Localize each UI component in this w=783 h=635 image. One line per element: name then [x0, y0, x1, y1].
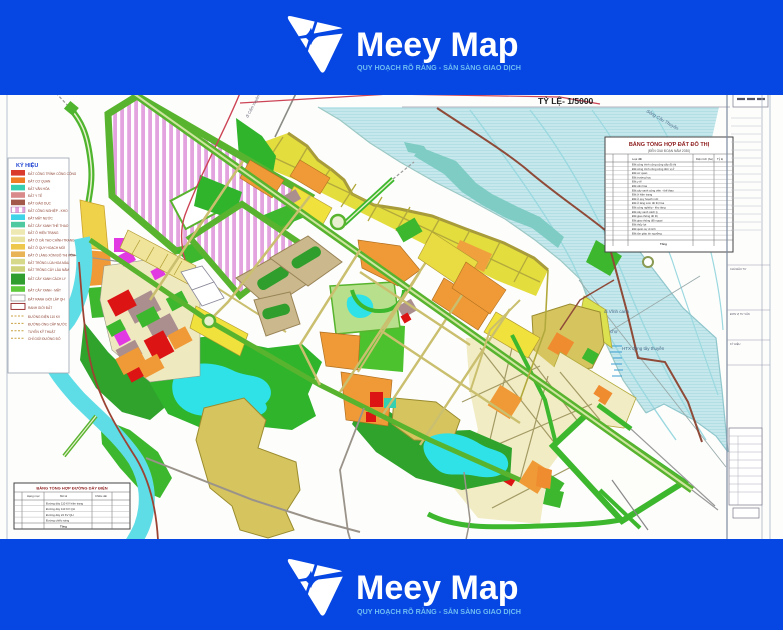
svg-text:Hạng mục: Hạng mục	[27, 494, 40, 498]
svg-text:ĐẤT CÂY XANH CÁCH LY: ĐẤT CÂY XANH CÁCH LY	[28, 277, 67, 281]
svg-text:ĐẤT RANH GIỚI LẬP QH: ĐẤT RANH GIỚI LẬP QH	[28, 297, 65, 302]
svg-text:QUY HOẠCH RÕ RÀNG - SẴN SÀNG G: QUY HOẠCH RÕ RÀNG - SẴN SÀNG GIAO DỊCH	[357, 63, 521, 72]
svg-text:chợ: chợ	[610, 329, 618, 334]
svg-text:ĐẤT TRỒNG LÚA HOA MÀU: ĐẤT TRỒNG LÚA HOA MÀU	[28, 260, 70, 265]
svg-text:Tổng: Tổng	[660, 242, 667, 246]
svg-text:Đường chiếu sáng: Đường chiếu sáng	[46, 519, 70, 523]
svg-text:ĐƯỜNG ỐNG CẤP NƯỚC: ĐƯỜNG ỐNG CẤP NƯỚC	[28, 321, 68, 326]
svg-text:ĐẤT Ở QUY HOẠCH MỚI: ĐẤT Ở QUY HOẠCH MỚI	[28, 245, 65, 250]
svg-text:Loại đất: Loại đất	[632, 157, 642, 161]
svg-text:ĐẤT MẶT NƯỚC: ĐẤT MẶT NƯỚC	[28, 215, 54, 220]
svg-text:đi Vĩnh canh: đi Vĩnh canh	[604, 309, 630, 314]
svg-text:(ĐẾN GIAI ĐOẠN NĂM 2030): (ĐẾN GIAI ĐOẠN NĂM 2030)	[648, 148, 690, 153]
svg-text:Diện tích (ha): Diện tích (ha)	[696, 157, 713, 161]
svg-text:Mô tả: Mô tả	[60, 494, 67, 498]
svg-text:Chiều dài: Chiều dài	[95, 494, 107, 498]
svg-text:Meey Map: Meey Map	[356, 26, 519, 64]
svg-text:Tỷ lệ: Tỷ lệ	[717, 157, 724, 161]
svg-text:ĐẤT Ở CẢI TẠO CHỈNH TRANG: ĐẤT Ở CẢI TẠO CHỈNH TRANG	[28, 238, 75, 243]
svg-text:BẢNG TỔNG HỢP ĐƯỜNG DÂY ĐIỆN: BẢNG TỔNG HỢP ĐƯỜNG DÂY ĐIỆN	[36, 486, 107, 491]
svg-text:ĐẤT Y TẾ: ĐẤT Y TẾ	[28, 193, 42, 198]
svg-text:ĐẤT Ở LÀNG XÓM ĐÔ THỊ HÓA: ĐẤT Ở LÀNG XÓM ĐÔ THỊ HÓA	[28, 252, 76, 257]
svg-text:ĐẤT CÂY XANH - MẶT: ĐẤT CÂY XANH - MẶT	[28, 288, 61, 292]
svg-text:RANH GIỚI ĐẤT: RANH GIỚI ĐẤT	[28, 305, 52, 310]
svg-text:ĐẤT GIÁO DỤC: ĐẤT GIÁO DỤC	[28, 202, 52, 206]
svg-text:BẢNG TỔNG HỢP ĐẤT ĐÔ THỊ: BẢNG TỔNG HỢP ĐẤT ĐÔ THỊ	[629, 140, 710, 148]
svg-text:CHỈ GIỚI ĐƯỜNG ĐỎ: CHỈ GIỚI ĐƯỜNG ĐỎ	[28, 336, 61, 341]
svg-text:KÝ HIỆU: KÝ HIỆU	[16, 161, 38, 169]
svg-text:Đường dây 110 KV QH: Đường dây 110 KV QH	[46, 507, 75, 511]
svg-text:QUY HOẠCH RÕ RÀNG - SẴN SÀNG G: QUY HOẠCH RÕ RÀNG - SẴN SÀNG GIAO DỊCH	[357, 607, 521, 616]
svg-text:Tổng: Tổng	[60, 525, 67, 529]
svg-text:Meey Map: Meey Map	[356, 569, 519, 607]
svg-text:ĐƯỜNG ĐIỆN 110 KV: ĐƯỜNG ĐIỆN 110 KV	[28, 314, 61, 319]
svg-text:ĐẤT CƠ QUAN: ĐẤT CƠ QUAN	[28, 179, 51, 183]
svg-text:ĐẤT VĂN HÓA: ĐẤT VĂN HÓA	[28, 186, 50, 191]
svg-text:TỶ LỆ- 1/5000: TỶ LỆ- 1/5000	[538, 95, 594, 106]
svg-text:HTX đồng tây thuyền: HTX đồng tây thuyền	[622, 346, 665, 351]
svg-text:TUYẾN KỸ THUẬT: TUYẾN KỸ THUẬT	[28, 329, 55, 334]
svg-text:Đất tôn giáo tín ngưỡng: Đất tôn giáo tín ngưỡng	[632, 231, 662, 235]
svg-text:ĐẤT CÔNG TRÌNH CÔNG CỘNG: ĐẤT CÔNG TRÌNH CÔNG CỘNG	[28, 171, 77, 176]
svg-text:Đường dây 110 KV hiện trạng: Đường dây 110 KV hiện trạng	[46, 502, 84, 506]
svg-text:ĐẤT Ở HIỆN TRẠNG: ĐẤT Ở HIỆN TRẠNG	[28, 230, 59, 235]
svg-text:ĐẤT CÂY XANH THỂ THAO: ĐẤT CÂY XANH THỂ THAO	[28, 223, 69, 228]
svg-text:Đường dây 22 KV QH: Đường dây 22 KV QH	[46, 513, 74, 517]
svg-text:ĐẤT TRỒNG CÂY LÂU NĂM: ĐẤT TRỒNG CÂY LÂU NĂM	[28, 267, 69, 272]
svg-text:ĐẤT CÔNG NGHIỆP - KHO: ĐẤT CÔNG NGHIỆP - KHO	[28, 208, 68, 213]
